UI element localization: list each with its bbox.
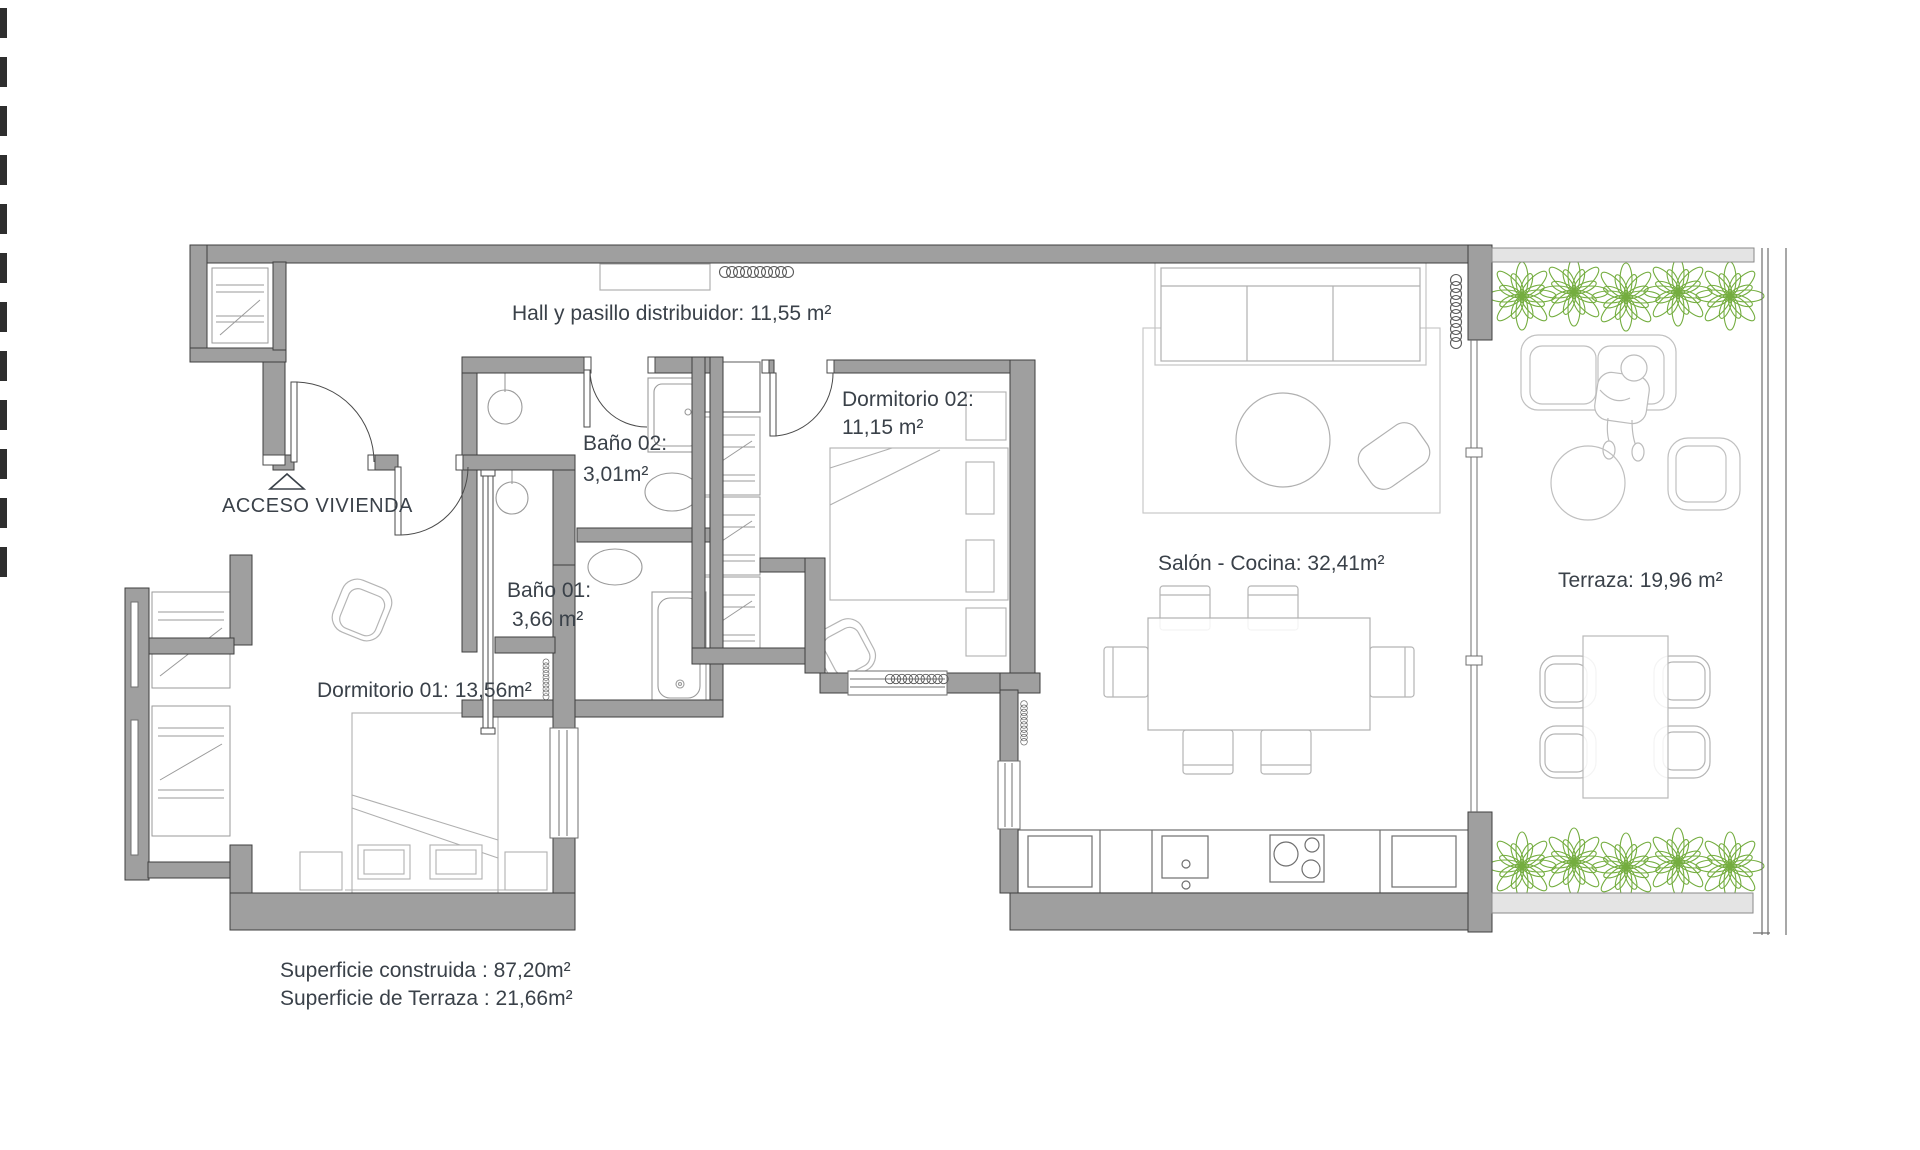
terrace-plants-top — [1488, 258, 1764, 331]
kitchen-appliance-right — [1392, 836, 1456, 887]
hall-radiator — [720, 267, 794, 278]
terrace-armchair — [1668, 438, 1740, 510]
dorm01-window — [550, 728, 578, 838]
salon-sofa — [1155, 262, 1426, 365]
entry-closet — [207, 263, 273, 348]
salon-terrace-glass-doors — [1466, 340, 1482, 812]
dorm01-wardrobes — [152, 592, 230, 836]
terraza-label: Terraza: 19,96 m² — [1558, 569, 1723, 592]
dorm02-label-area: 11,15 m² — [842, 416, 923, 439]
summary-built-area: Superficie construida : 87,20m² — [280, 959, 571, 982]
dorm01-left-window-slits — [131, 602, 138, 855]
bano01-washbasin2 — [496, 482, 528, 514]
dorm02-door — [770, 373, 833, 436]
bano02-toilet — [645, 473, 699, 511]
kitchen-radiator — [1021, 701, 1028, 745]
hall-label: Hall y pasillo distribuidor: 11,55 m² — [512, 302, 831, 325]
kitchen-window — [998, 761, 1020, 829]
floor-plan-drawing: Hall y pasillo distribuidor: 11,55 m² AC… — [0, 0, 1920, 1150]
floor-plan-page: Hall y pasillo distribuidor: 11,55 m² AC… — [0, 0, 1920, 1150]
dorm01-radiator — [543, 659, 549, 700]
hall-console-table — [600, 264, 710, 290]
bano01-toilet — [588, 549, 642, 585]
terrace-plants-bottom — [1488, 828, 1764, 901]
salon-dining-table — [1148, 618, 1370, 730]
acceso-label: ACCESO VIVIENDA — [222, 495, 413, 517]
entry-door — [291, 382, 374, 462]
dorm01-chair — [327, 574, 396, 645]
kitchen-counter — [1018, 830, 1470, 893]
dorm02-label-name: Dormitorio 02: — [842, 388, 974, 411]
acceso-arrow-icon — [270, 474, 304, 489]
salon-label: Salón - Cocina: 32,41m² — [1158, 552, 1384, 575]
dorm01-bed — [300, 713, 547, 893]
kitchen-appliance-left — [1028, 836, 1092, 887]
terrace-side-table — [1551, 446, 1625, 520]
kitchen-cooktop — [1270, 835, 1324, 882]
salon-dining-set — [1104, 586, 1414, 774]
salon-coffee-table — [1236, 393, 1330, 487]
summary-terrace-area: Superficie de Terraza : 21,66m² — [280, 987, 573, 1010]
bano01-label-name: Baño 01: — [507, 579, 591, 602]
salon-pouf — [1352, 417, 1435, 495]
bano02-label-name: Baño 02: — [583, 432, 667, 455]
terrace-dining-table — [1583, 636, 1668, 798]
dorm01-label: Dormitorio 01: 13,56m² — [317, 679, 532, 702]
bano02-washbasin — [488, 390, 522, 424]
terrace-dining-set — [1540, 636, 1710, 798]
salon-radiator — [1451, 275, 1462, 349]
bano02-door — [584, 370, 647, 427]
bano02-label-area: 3,01m² — [583, 463, 648, 486]
bano01-label-area: 3,66 m² — [512, 608, 583, 631]
terrace-glass-railing — [1753, 248, 1786, 935]
left-edge-marks — [0, 8, 7, 577]
